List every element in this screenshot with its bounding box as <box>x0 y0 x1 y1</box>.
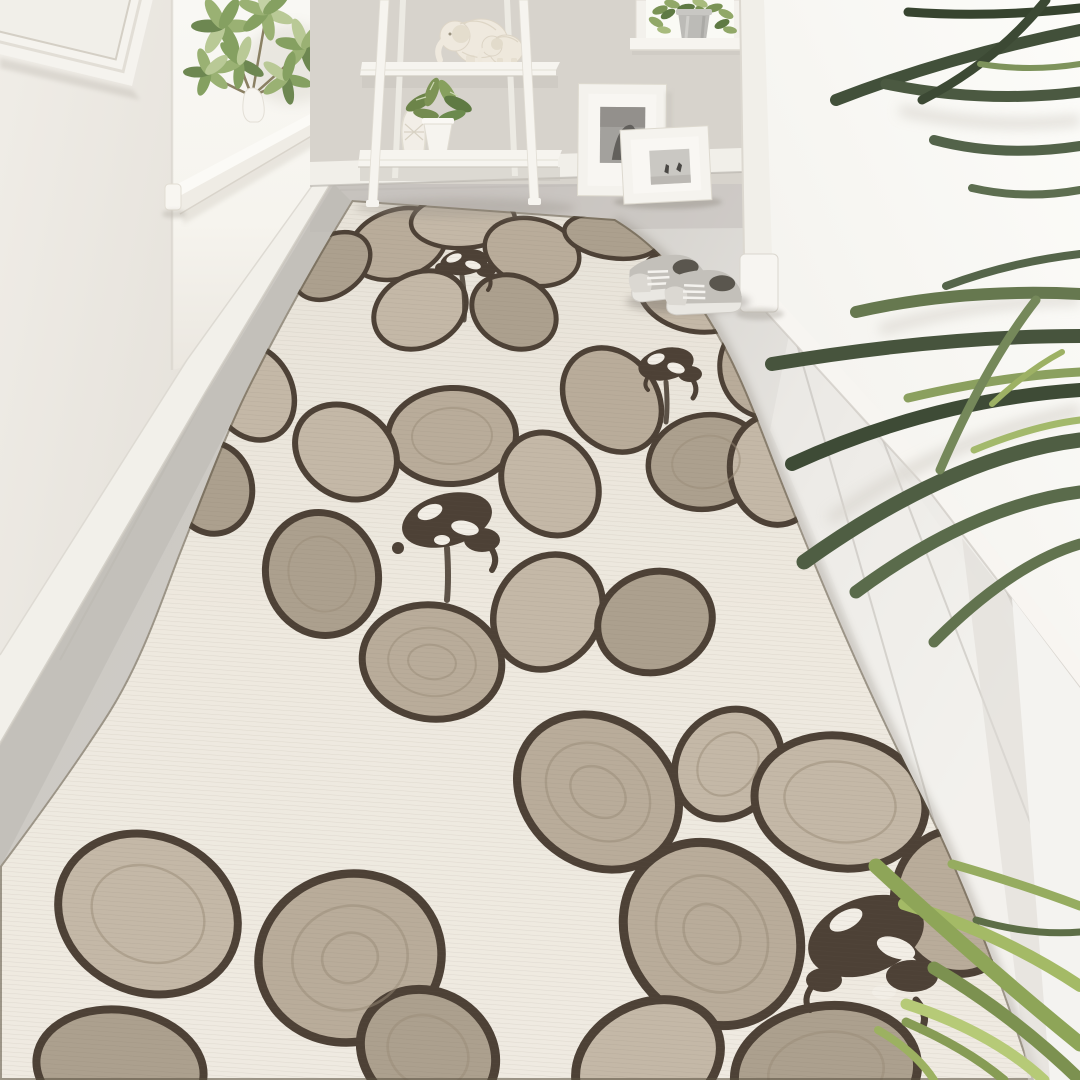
leaning-frame-small <box>620 126 712 205</box>
shelf-plant-pot <box>424 124 452 152</box>
galvanized-bucket <box>676 9 712 40</box>
sill-end-cap <box>165 184 181 210</box>
shelf-floor-shadow <box>355 198 575 218</box>
ledge-shadow <box>632 51 746 55</box>
hallway-photo <box>0 0 1080 1080</box>
scene-svg <box>0 0 1080 1080</box>
window-ledge <box>630 38 748 50</box>
shelf-foot-left <box>366 200 379 207</box>
shelf-foot-right <box>528 198 541 205</box>
cap-shadow <box>736 308 784 320</box>
back-window <box>630 0 748 55</box>
sill-cap-shadow <box>162 210 186 218</box>
